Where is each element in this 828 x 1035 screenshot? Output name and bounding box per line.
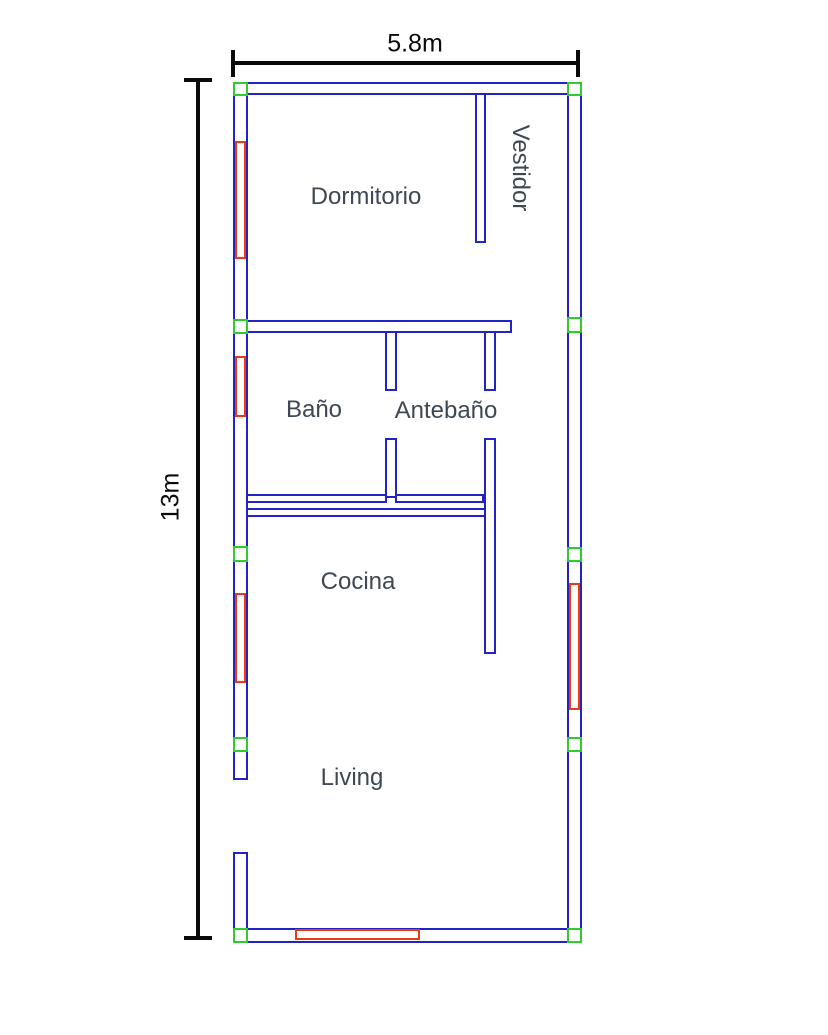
wall-antebano-cocina [484,438,496,654]
wall-bano-antebano-lower [385,438,397,498]
room-label-vestidor: Vestidor [506,125,534,212]
wall-vestidor-partition [475,93,486,243]
window-living-window [295,929,420,940]
width-dimension-tick-right [576,50,580,77]
floor-plan-canvas: 5.8m 13m DormitorioVestidorBañoAntebañoC… [0,0,828,1035]
wall-bano-antebano-upper [385,331,397,391]
height-dimension-tick-top [184,78,212,82]
width-dimension-line [233,61,580,65]
wall-bano-bottom-left [246,494,387,503]
height-dimension-label: 13m [157,473,186,522]
window-cocina-left-window [235,593,246,683]
window-bano-window [235,356,246,417]
room-label-living: Living [321,764,384,792]
wall-top-exterior [233,82,582,95]
wall-right-exterior [567,82,582,943]
room-label-cocina: Cocina [321,568,396,596]
height-dimension-tick-bottom [184,936,212,940]
wall-cocina-top [246,508,486,517]
room-label-antebano: Antebaño [395,397,498,425]
width-dimension-label: 5.8m [387,30,443,59]
room-label-bano: Baño [286,396,342,424]
wall-antebano-hall-upper [484,331,496,391]
marker-corner-top-right [567,82,582,96]
window-dormitorio-window [235,141,246,259]
marker-corner-bottom-left [233,928,248,943]
marker-right-cocina [567,547,582,562]
height-dimension-line [196,79,200,939]
width-dimension-tick-left [231,50,235,77]
marker-left-cocina [233,546,248,562]
marker-corner-bottom-right [567,928,582,943]
marker-right-living [567,737,582,752]
window-cocina-right-window [569,583,580,710]
marker-right-bano-level [567,317,582,333]
wall-bano-bottom-right [395,494,484,503]
wall-bano-top [246,320,512,333]
marker-corner-top-left [233,82,248,96]
marker-left-bano-junction [233,319,248,334]
room-label-dormitorio: Dormitorio [311,183,422,211]
marker-left-living [233,737,248,752]
